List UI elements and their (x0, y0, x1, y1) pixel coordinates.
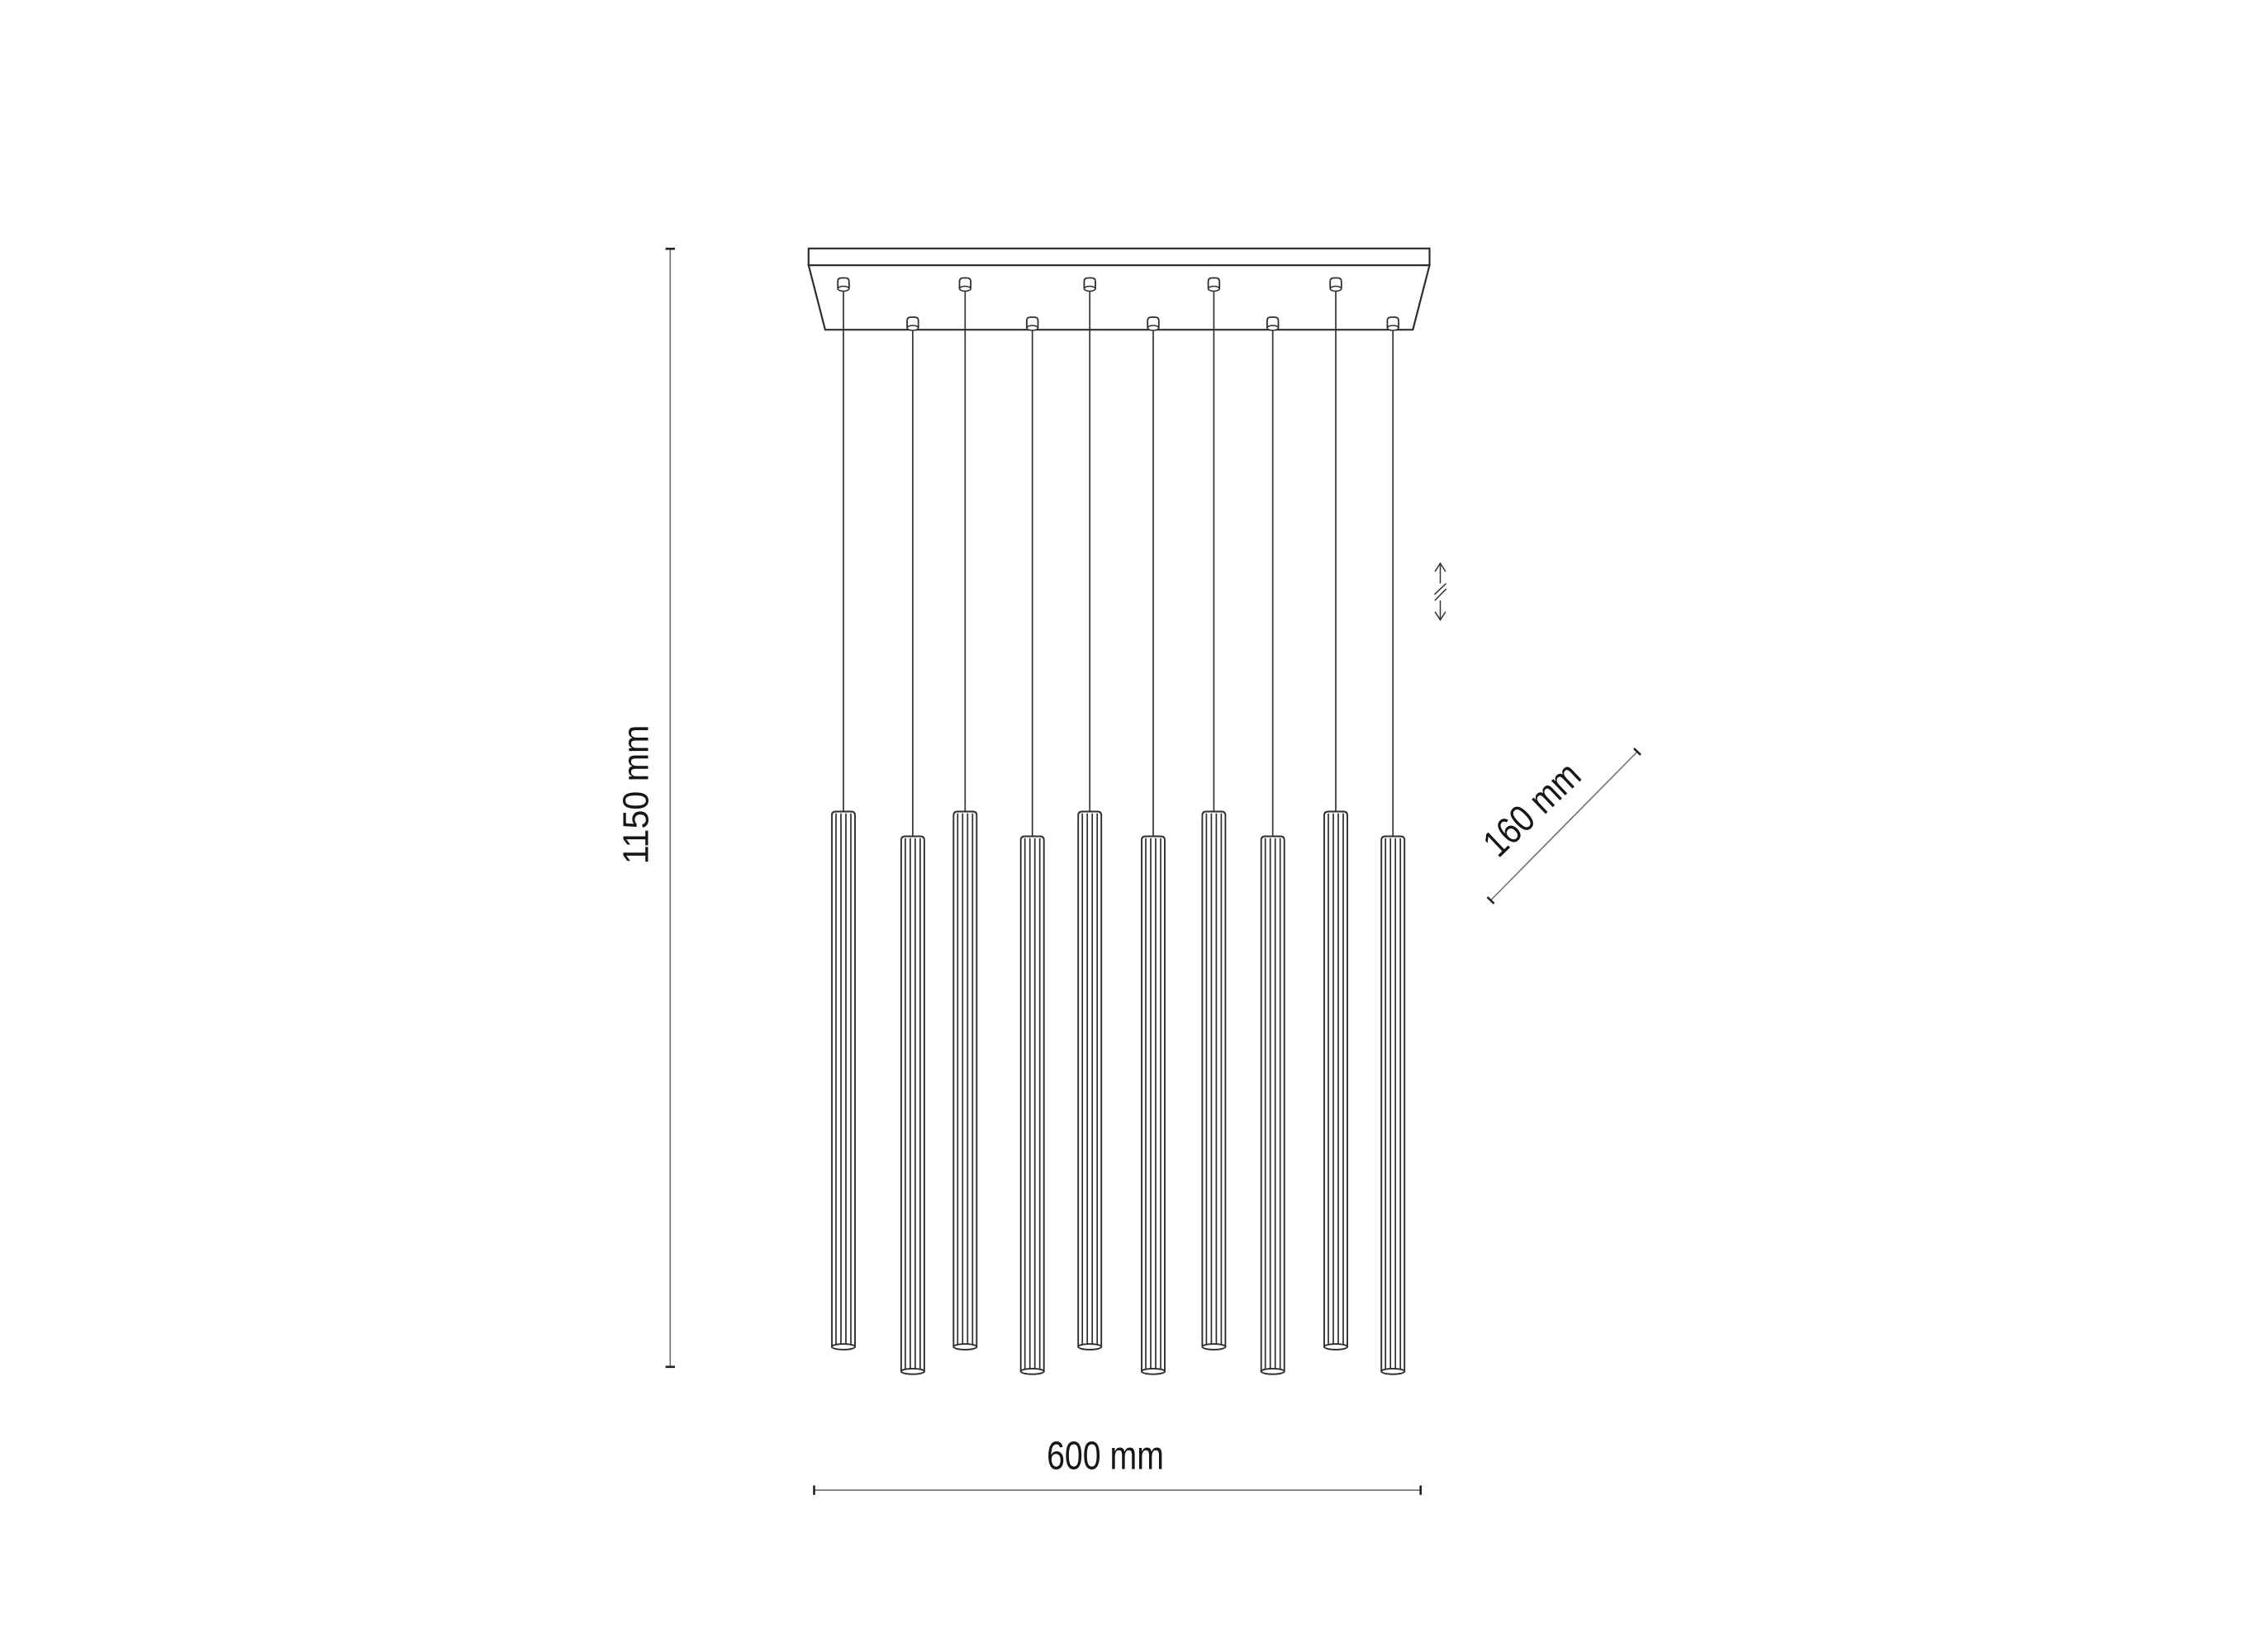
svg-text:1150 mm: 1150 mm (615, 725, 657, 865)
svg-text:600 mm: 600 mm (1047, 1434, 1164, 1479)
